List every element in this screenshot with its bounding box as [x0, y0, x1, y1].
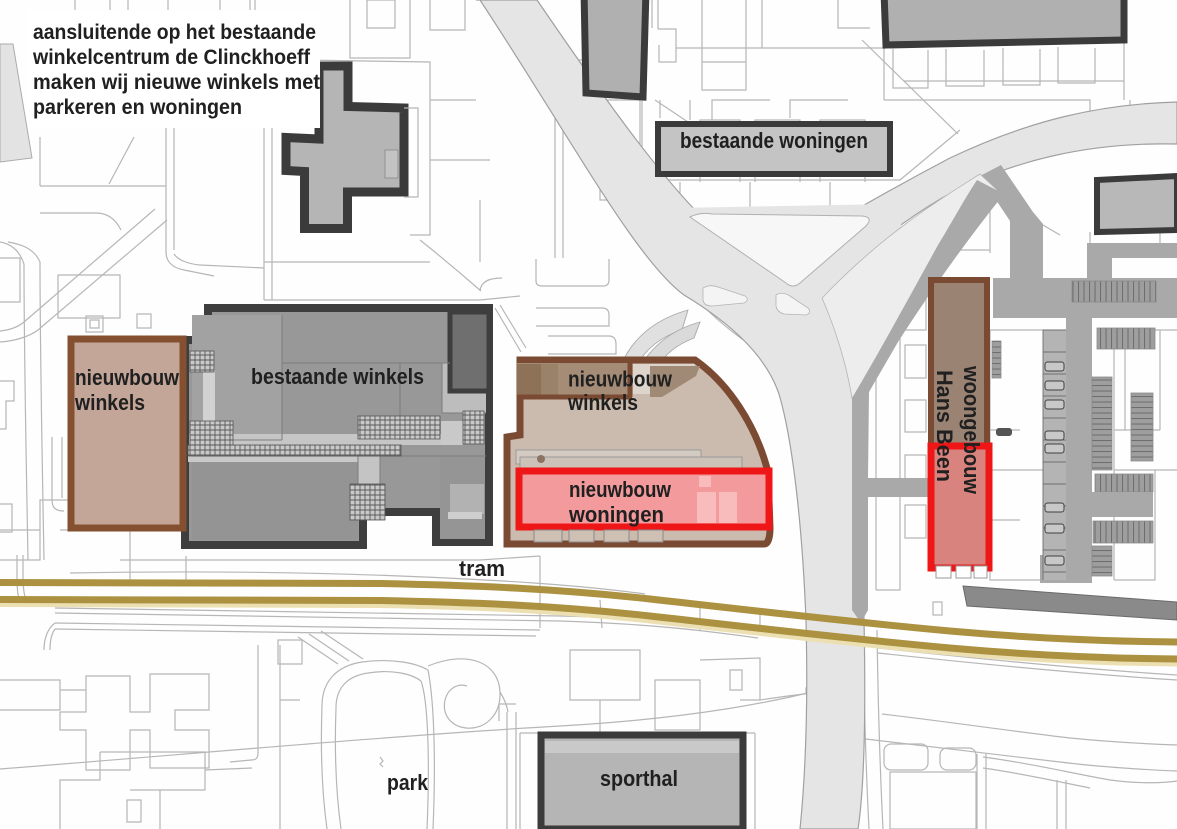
svg-text:park: park [387, 770, 429, 795]
svg-text:bestaande winkels: bestaande winkels [251, 364, 424, 389]
svg-text:winkels: winkels [74, 390, 145, 415]
svg-text:parkeren en woningen: parkeren en woningen [33, 96, 242, 119]
svg-text:bestaande woningen: bestaande woningen [680, 128, 868, 153]
svg-text:woningen: woningen [568, 502, 664, 527]
svg-text:nieuwbouw: nieuwbouw [568, 367, 673, 392]
svg-text:woongebouw: woongebouw [959, 365, 984, 495]
svg-text:Hans Been: Hans Been [932, 370, 957, 482]
svg-text:aansluitende op het bestaande: aansluitende op het bestaande [33, 21, 316, 44]
svg-text:winkels: winkels [567, 390, 638, 415]
svg-text:tram: tram [459, 556, 505, 581]
svg-text:nieuwbouw: nieuwbouw [569, 477, 672, 502]
svg-text:maken wij nieuwe winkels met: maken wij nieuwe winkels met [33, 71, 320, 94]
svg-text:winkelcentrum de Clinckhoeff: winkelcentrum de Clinckhoeff [32, 46, 311, 69]
svg-text:nieuwbouw: nieuwbouw [75, 365, 180, 390]
svg-text:sporthal: sporthal [600, 766, 678, 791]
